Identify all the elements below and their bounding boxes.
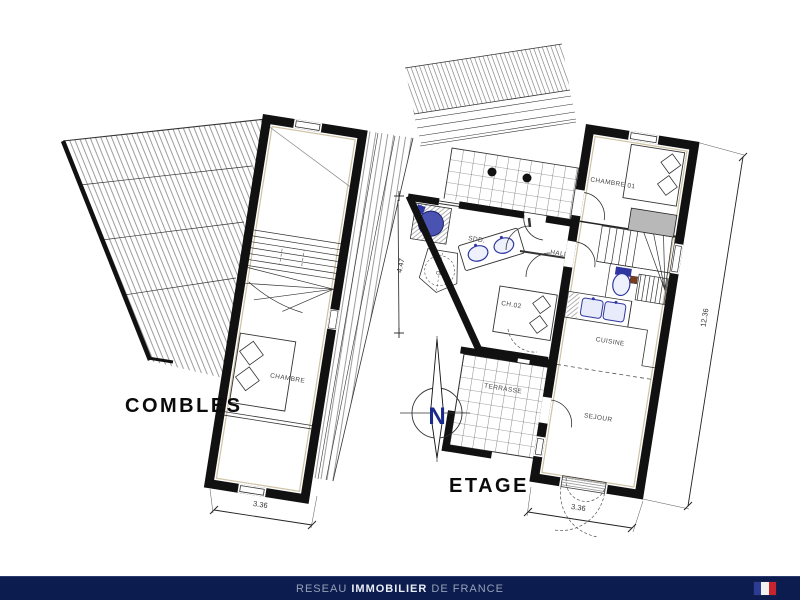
plan-title-combles: COMBLES [125, 395, 243, 417]
balcony-post-icon [488, 168, 497, 177]
footer-brand: RESEAU IMMOBILIER DE FRANCE [296, 583, 504, 595]
kitchen-sink [603, 301, 627, 322]
compass-north-label: N [428, 403, 445, 430]
footer-brand-main: IMMOBILIER [351, 583, 427, 595]
footer-brand-suffix: DE FRANCE [431, 583, 504, 595]
ch02-bed [493, 286, 557, 341]
plan-title-etage: ETAGE [449, 475, 529, 497]
floor-plan-drawing: CHAMBRE 3.36 COMBLES [0, 0, 800, 578]
france-flag-icon [753, 581, 777, 596]
balcony-post-icon [523, 174, 532, 183]
floor-plan-sheet: CHAMBRE 3.36 COMBLES [0, 0, 800, 600]
kitchen-sink [580, 298, 604, 319]
footer-bar: RESEAU IMMOBILIER DE FRANCE [0, 576, 800, 600]
footer-brand-prefix: RESEAU [296, 583, 347, 595]
chambre01-bed [623, 144, 685, 206]
